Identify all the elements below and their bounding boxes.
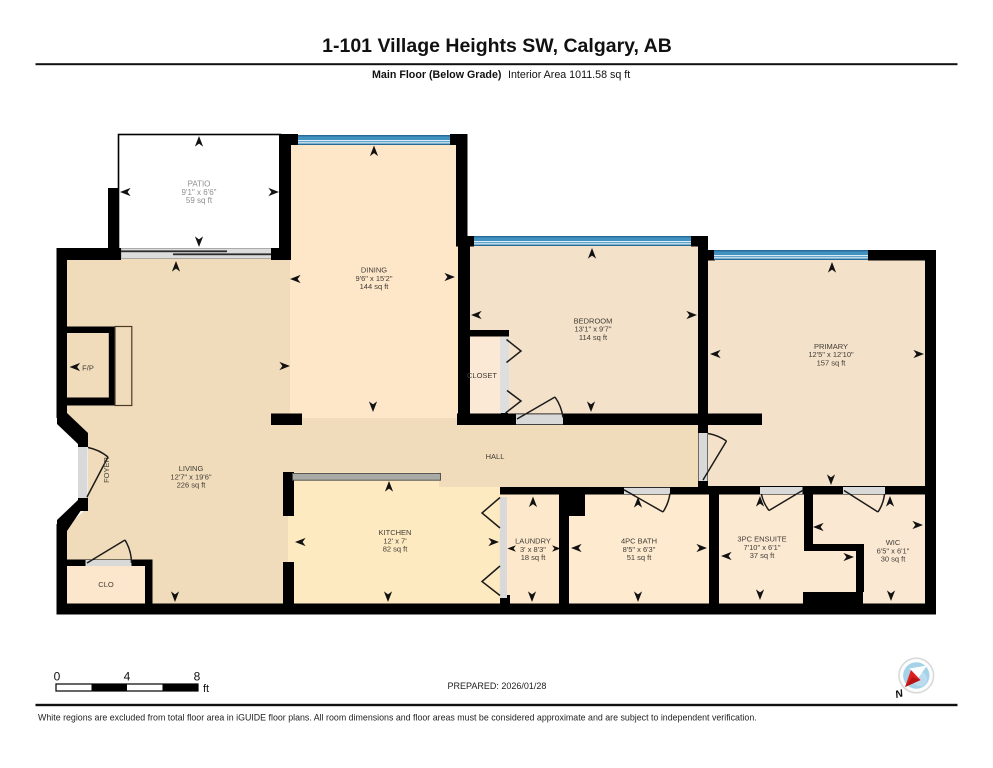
svg-text:FOYER: FOYER <box>102 457 111 483</box>
svg-text:37 sq ft: 37 sq ft <box>750 551 776 560</box>
svg-text:144 sq ft: 144 sq ft <box>360 282 390 291</box>
svg-text:4: 4 <box>124 670 131 684</box>
svg-text:CLO: CLO <box>98 580 114 589</box>
svg-text:PREPARED: 2026/01/28: PREPARED: 2026/01/28 <box>448 681 547 691</box>
svg-text:30 sq ft: 30 sq ft <box>881 555 907 564</box>
svg-text:157 sq ft: 157 sq ft <box>817 358 847 367</box>
svg-text:114 sq ft: 114 sq ft <box>579 333 608 342</box>
svg-text:1-101 Village Heights SW, Calg: 1-101 Village Heights SW, Calgary, AB <box>322 35 672 57</box>
svg-text:0: 0 <box>54 670 61 684</box>
svg-text:18 sq ft: 18 sq ft <box>521 553 547 562</box>
svg-text:82 sq ft: 82 sq ft <box>383 545 409 554</box>
svg-text:CLOSET: CLOSET <box>467 371 497 380</box>
svg-text:HALL: HALL <box>486 452 505 461</box>
svg-text:Interior Area 1011.58 sq ft: Interior Area 1011.58 sq ft <box>508 69 630 81</box>
svg-text:ft: ft <box>203 683 209 695</box>
svg-text:White regions are excluded fro: White regions are excluded from total fl… <box>38 713 757 723</box>
svg-text:F/P: F/P <box>82 364 94 373</box>
svg-text:8: 8 <box>194 670 201 684</box>
svg-text:51 sq ft: 51 sq ft <box>627 553 653 562</box>
svg-text:59 sq ft: 59 sq ft <box>186 196 213 205</box>
svg-text:226 sq ft: 226 sq ft <box>177 481 207 490</box>
svg-text:Main Floor (Below Grade): Main Floor (Below Grade) <box>372 69 502 81</box>
